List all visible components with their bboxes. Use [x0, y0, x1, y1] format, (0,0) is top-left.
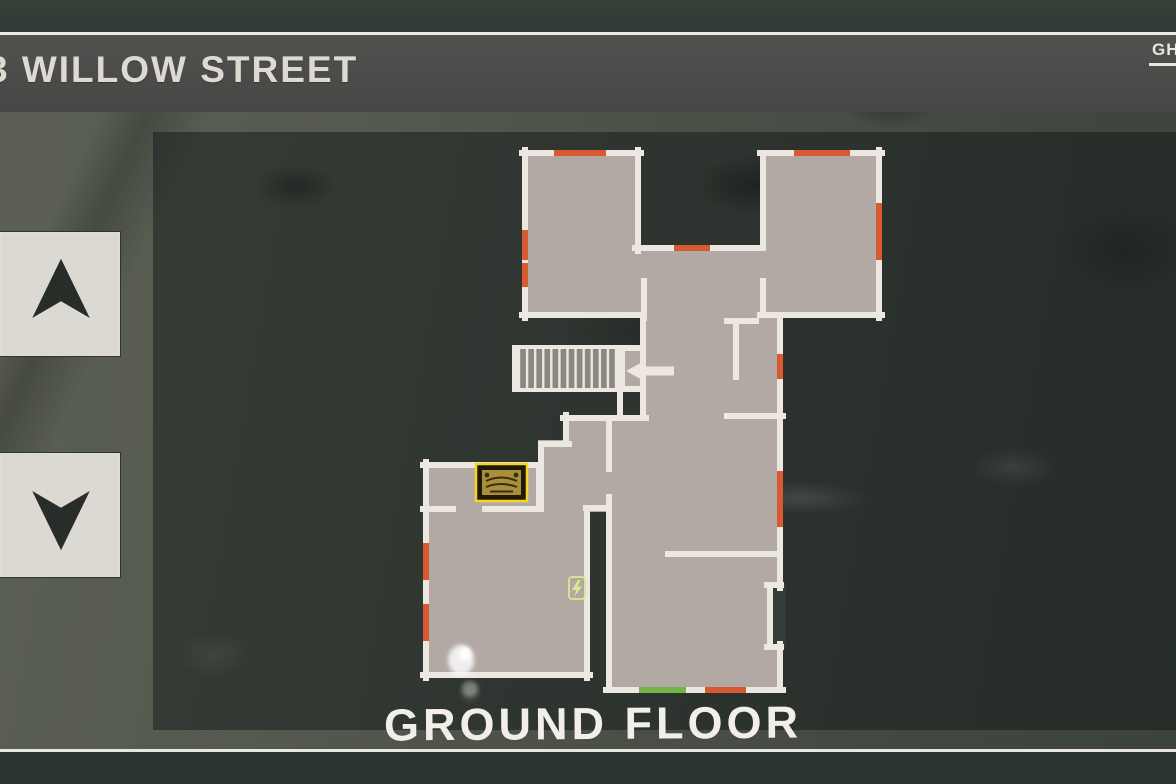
- ouija-board-mark: [514, 473, 519, 478]
- ouija-board-mark: [485, 473, 490, 478]
- floorplan-svg: [405, 142, 895, 702]
- wall-notch: [773, 585, 786, 647]
- stair-step: [536, 349, 542, 388]
- salt-pile: [459, 647, 471, 661]
- stair-step: [601, 349, 607, 388]
- arrow-up-icon: [21, 254, 101, 334]
- stair-step: [569, 349, 575, 388]
- room-fill: [522, 150, 641, 318]
- stair-step: [520, 349, 526, 388]
- salt-pile: [462, 681, 478, 697]
- tab-underline: [1149, 63, 1176, 66]
- stair-step: [585, 349, 591, 388]
- stair-step: [528, 349, 534, 388]
- room-fill: [423, 504, 590, 678]
- room-fill: [538, 440, 612, 512]
- stair-step: [609, 349, 615, 388]
- room-fill: [635, 245, 763, 318]
- tab-ghost[interactable]: GH: [1152, 40, 1176, 60]
- stair-step: [593, 349, 599, 388]
- arrow-down-icon: [21, 475, 101, 555]
- floor-up-button[interactable]: [0, 231, 121, 357]
- stair-step: [553, 349, 559, 388]
- stair-step: [577, 349, 583, 388]
- room-fill: [760, 150, 882, 318]
- floor-label: GROUND FLOOR: [378, 696, 808, 751]
- stair-step: [561, 349, 567, 388]
- stair-step: [544, 349, 550, 388]
- title-bar: 3 WILLOW STREET GH: [0, 35, 1176, 112]
- page-title: 3 WILLOW STREET: [0, 49, 358, 91]
- top-strip: [0, 0, 1176, 32]
- bottom-strip: [0, 752, 1176, 784]
- floor-down-button[interactable]: [0, 452, 121, 578]
